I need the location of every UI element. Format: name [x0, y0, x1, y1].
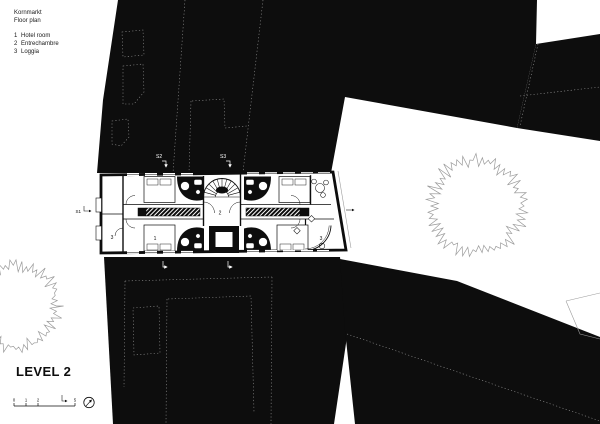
legend-num: 3: [14, 48, 21, 56]
hotel-floor-plan: 3 1 2 3: [96, 172, 346, 254]
scale-bar: 0 1 2 5: [13, 398, 77, 407]
sheet-subtitle: Floor plan: [14, 17, 59, 25]
room-label-entrechambre: 2: [219, 211, 222, 217]
legend-item: 3Loggia: [14, 48, 59, 56]
legend-item: 2Entrechambre: [14, 40, 59, 48]
legend-item: 1Hotel room: [14, 32, 59, 40]
scale-tick-0: 0: [13, 398, 16, 403]
bed-lower-left: [144, 225, 175, 251]
building-mass-southeast: [340, 259, 600, 424]
tree-icon: [426, 154, 527, 257]
legend-label: Hotel room: [21, 32, 50, 40]
scale-tick-5: 5: [74, 398, 77, 403]
building-mass-south: [104, 257, 348, 424]
site-plan-drawing: 3 1 2 3 S2 S3 S1 0 1 2 5: [0, 0, 600, 424]
section-label-s2: S2: [156, 154, 162, 160]
legend-label: Entrechambre: [21, 40, 59, 48]
elevator-core: [209, 226, 239, 253]
bed-lower-right: [277, 225, 308, 251]
scale-tick-1: 1: [25, 398, 28, 403]
room-label-loggia-east: 3: [320, 236, 323, 242]
sheet-title: Kornmarkt: [14, 9, 59, 17]
floor-plan-sheet: 3 1 2 3 S2 S3 S1 0 1 2 5: [0, 0, 600, 424]
level-label: LEVEL 2: [16, 364, 71, 379]
section-arrow-icon: [62, 395, 67, 401]
tree-icon: [0, 260, 64, 353]
legend-num: 1: [14, 32, 21, 40]
room-label-hotel-room: 1: [154, 236, 157, 242]
section-arrow-icon: [84, 206, 91, 211]
building-mass-north: [97, 0, 537, 173]
sheet-header: Kornmarkt Floor plan 1Hotel room 2Entrec…: [14, 9, 59, 56]
north-arrow-icon: [84, 397, 94, 407]
bed-upper-left: [144, 177, 175, 203]
bed-upper-right: [279, 177, 310, 203]
legend-num: 2: [14, 40, 21, 48]
legend-label: Loggia: [21, 48, 39, 56]
room-label-loggia-west: 3: [111, 235, 114, 241]
scale-tick-2: 2: [37, 398, 40, 403]
section-label-s1: S1: [75, 209, 81, 214]
section-label-s3: S3: [220, 154, 226, 160]
